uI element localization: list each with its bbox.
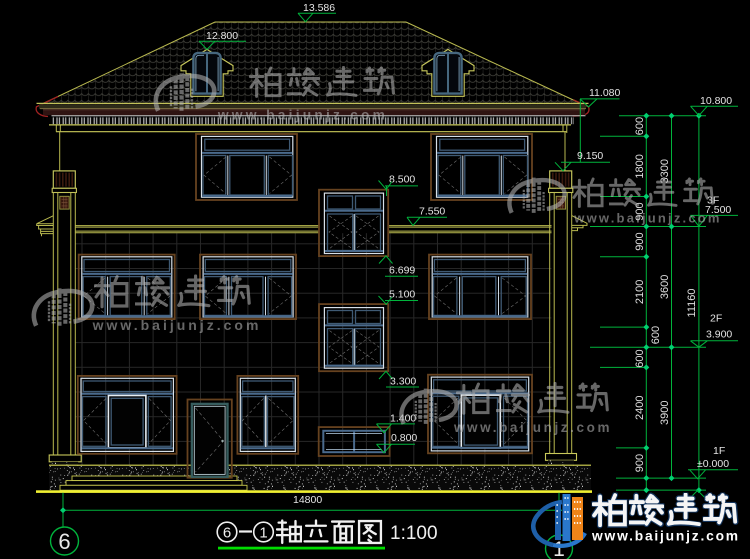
svg-text:0.800: 0.800 [391, 432, 417, 444]
svg-text:8.500: 8.500 [389, 174, 415, 186]
svg-text:11160: 11160 [686, 289, 698, 318]
svg-text:600: 600 [650, 326, 662, 344]
svg-text:11.080: 11.080 [589, 87, 620, 99]
svg-text:www.baijunjz.com: www.baijunjz.com [453, 420, 612, 435]
svg-text:2400: 2400 [634, 395, 646, 419]
svg-text:3.300: 3.300 [390, 376, 416, 388]
svg-text:1F: 1F [713, 445, 725, 457]
svg-text:www.baijunjz.com: www.baijunjz.com [217, 108, 388, 123]
svg-text:1: 1 [259, 525, 267, 542]
svg-text:7.550: 7.550 [419, 206, 445, 218]
svg-text:www.baijunjz.com: www.baijunjz.com [92, 317, 262, 333]
svg-text:5.100: 5.100 [389, 289, 415, 301]
svg-text:10.800: 10.800 [700, 95, 732, 107]
svg-text:3600: 3600 [659, 275, 671, 299]
svg-text:600: 600 [634, 349, 646, 367]
svg-text:900: 900 [634, 232, 646, 250]
svg-text:600: 600 [634, 117, 646, 135]
svg-text:2100: 2100 [634, 280, 646, 304]
svg-text:6.699: 6.699 [389, 265, 415, 277]
svg-text:1: 1 [553, 538, 565, 559]
svg-text:12.800: 12.800 [206, 30, 238, 42]
svg-text:6: 6 [58, 529, 70, 554]
svg-text:6: 6 [223, 525, 231, 542]
svg-text:3900: 3900 [659, 400, 671, 424]
svg-text:1:100: 1:100 [390, 523, 438, 544]
svg-text:2F: 2F [710, 313, 722, 325]
svg-text:900: 900 [634, 454, 646, 472]
svg-text:1800: 1800 [634, 154, 646, 178]
svg-text:3.900: 3.900 [706, 329, 732, 341]
svg-text:±0.000: ±0.000 [697, 458, 729, 470]
svg-text:13.586: 13.586 [303, 2, 335, 14]
svg-text:14800: 14800 [293, 494, 322, 506]
svg-text:9.150: 9.150 [577, 150, 603, 162]
svg-text:www.baijunjz.com: www.baijunjz.com [591, 529, 740, 544]
svg-text:www.baijunjz.com: www.baijunjz.com [573, 211, 721, 226]
